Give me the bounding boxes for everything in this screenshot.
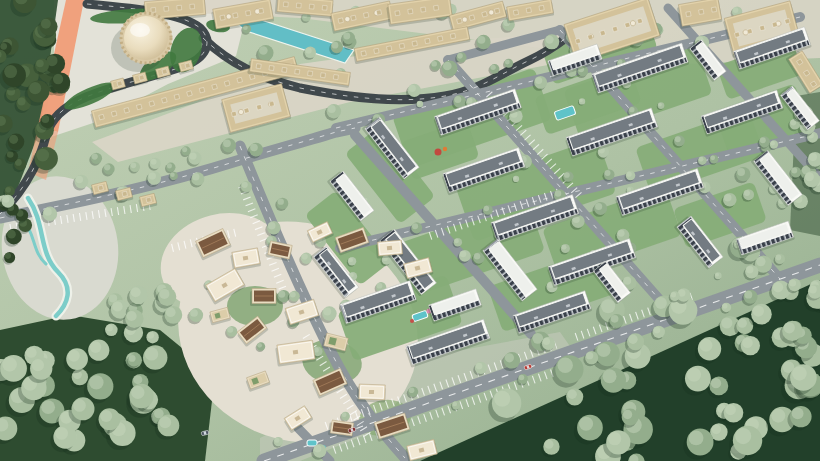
- dome-roof: [124, 16, 168, 60]
- masterplan-aerial-view: [0, 0, 820, 461]
- dome-highlight: [130, 23, 150, 37]
- aerial-render-figure: [0, 0, 820, 461]
